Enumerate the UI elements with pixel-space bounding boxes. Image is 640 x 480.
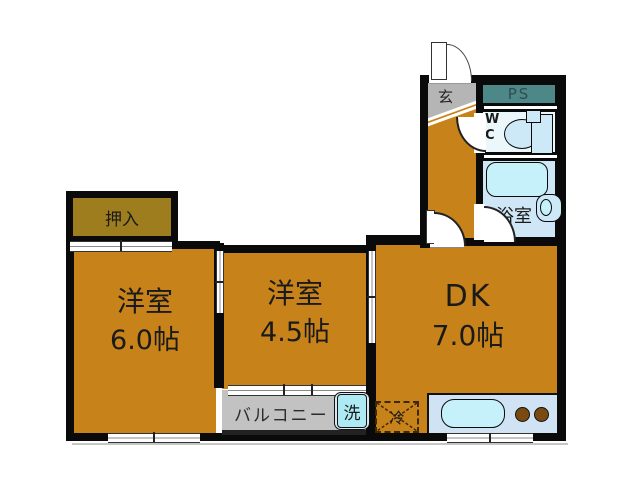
wall [172, 241, 220, 249]
room-size: 4.5帖 [260, 314, 330, 352]
toilet-label-w: W [485, 112, 499, 128]
bathtub-icon [486, 162, 548, 197]
pipe-space-box: PS [480, 82, 558, 106]
refrigerator-label: 冷 [389, 407, 404, 428]
entrance-door-leaf [431, 42, 447, 80]
entrance-label: 玄 [438, 86, 453, 107]
balcony-edge [222, 430, 366, 435]
refrigerator-box: 冷 [375, 401, 419, 433]
washing-machine-box: 洗 [334, 392, 370, 430]
wall [557, 75, 566, 441]
balcony-label: バルコニー [234, 401, 329, 426]
room-name: DK [445, 277, 492, 317]
washing-machine-inner: 洗 [337, 394, 367, 428]
room-name: 洋室 [267, 274, 323, 314]
washing-machine-label: 洗 [344, 399, 361, 424]
stove-burner-icon [534, 407, 549, 422]
closet-box: 押入 [66, 191, 178, 243]
toilet-label: W C [485, 112, 499, 144]
western-room-6-label: 洋室 6.0帖 [75, 282, 215, 360]
wall [66, 241, 74, 441]
wall [214, 245, 376, 253]
toilet-lid [526, 110, 541, 123]
entrance-door-swing-icon [447, 44, 472, 81]
window-tick [153, 432, 155, 442]
window-tick [489, 432, 491, 442]
toilet-label-c: C [485, 128, 499, 144]
pipe-space-label: PS [508, 85, 531, 103]
window-tick [367, 296, 375, 298]
western-room-45-label: 洋室 4.5帖 [224, 274, 366, 352]
kitchen-sink-icon [441, 399, 505, 428]
room-name: 洋室 [117, 282, 173, 322]
washbasin-oval [540, 199, 552, 216]
room-size: 6.0帖 [110, 322, 180, 360]
dk-label: DK 7.0帖 [398, 277, 538, 355]
room-size: 7.0帖 [432, 317, 505, 355]
window-tick [311, 384, 313, 395]
floor-plan: 押入 PS W C 浴室 [0, 0, 640, 480]
plan-shadow [72, 443, 568, 445]
closet-label: 押入 [105, 205, 139, 230]
stove-burner-icon [515, 407, 530, 422]
window-tick [120, 240, 122, 251]
window-tick [215, 281, 223, 283]
window-tick [283, 384, 285, 395]
